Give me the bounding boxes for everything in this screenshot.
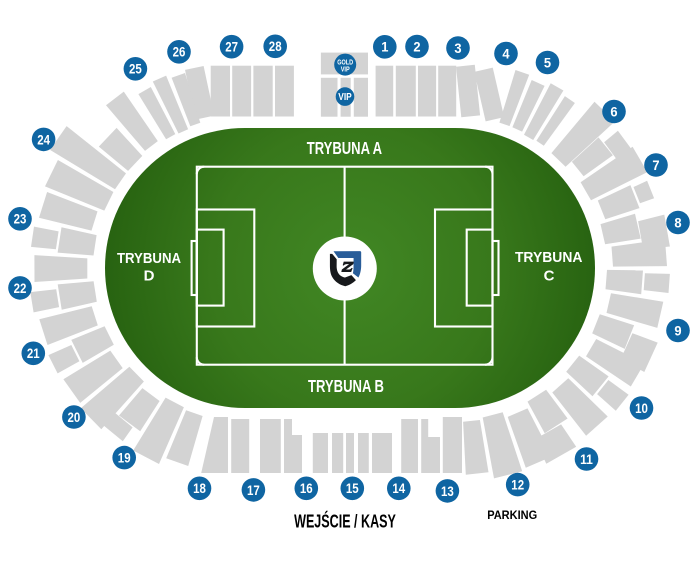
svg-text:16: 16	[300, 481, 313, 496]
svg-text:25: 25	[129, 62, 142, 77]
svg-text:6: 6	[610, 104, 617, 119]
svg-text:27: 27	[225, 40, 238, 55]
svg-text:PARKING: PARKING	[487, 508, 537, 522]
svg-text:12: 12	[511, 478, 524, 493]
svg-text:9: 9	[674, 323, 681, 338]
svg-text:C: C	[544, 268, 555, 285]
svg-text:17: 17	[247, 483, 260, 498]
svg-text:10: 10	[635, 401, 648, 416]
svg-text:7: 7	[652, 158, 659, 173]
svg-text:26: 26	[173, 45, 186, 60]
svg-text:2: 2	[413, 39, 420, 54]
svg-text:13: 13	[441, 484, 454, 499]
svg-text:21: 21	[27, 346, 40, 361]
svg-text:3: 3	[454, 41, 461, 56]
svg-text:TRYBUNA: TRYBUNA	[117, 250, 181, 267]
svg-text:22: 22	[14, 281, 27, 296]
svg-text:28: 28	[269, 39, 282, 54]
svg-text:14: 14	[392, 481, 405, 496]
svg-text:TRYBUNA A: TRYBUNA A	[307, 138, 383, 158]
svg-text:VIP: VIP	[338, 92, 352, 103]
svg-text:TRYBUNA B: TRYBUNA B	[308, 376, 384, 396]
svg-text:18: 18	[193, 481, 206, 496]
svg-text:24: 24	[37, 132, 50, 147]
svg-text:VIP: VIP	[341, 66, 350, 73]
svg-text:23: 23	[14, 212, 27, 227]
svg-text:TRYBUNA: TRYBUNA	[515, 249, 583, 266]
svg-text:4: 4	[502, 46, 509, 61]
svg-text:8: 8	[674, 215, 681, 230]
svg-text:15: 15	[346, 481, 359, 496]
svg-text:11: 11	[580, 452, 593, 467]
svg-text:GOLD: GOLD	[337, 59, 353, 66]
svg-text:D: D	[144, 268, 155, 285]
svg-text:20: 20	[68, 410, 81, 425]
svg-text:WEJŚCIE / KASY: WEJŚCIE / KASY	[294, 511, 396, 532]
svg-text:19: 19	[118, 451, 131, 466]
svg-text:5: 5	[544, 55, 551, 70]
svg-text:1: 1	[381, 40, 388, 55]
